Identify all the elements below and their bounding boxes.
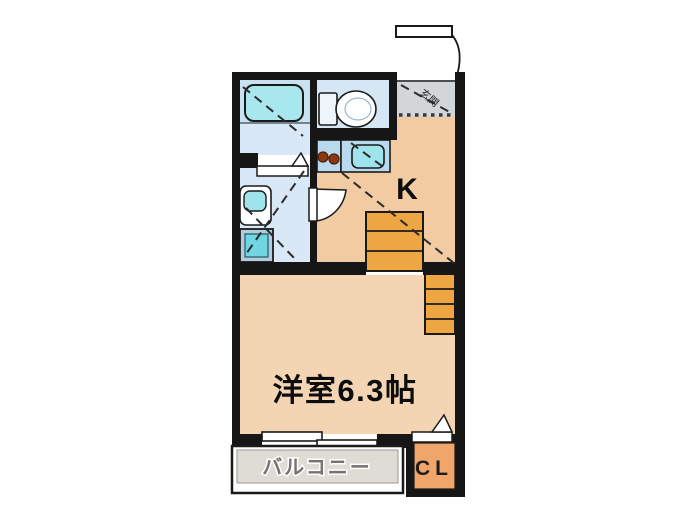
- wall-left: [232, 72, 240, 450]
- entrance-door-leaf: [396, 26, 452, 37]
- stove-burner-right: [329, 154, 339, 164]
- main-room-label: 洋室6.3帖: [272, 373, 417, 408]
- wall-closet-bottom: [406, 489, 465, 497]
- floor-plan-page: K 洋室6.3帖 バルコニー CL 玄関: [0, 0, 700, 525]
- wall-toilet-bottom: [310, 128, 397, 140]
- wall-right: [455, 72, 465, 497]
- main-room-floor: [240, 275, 455, 434]
- bathtub: [245, 85, 303, 121]
- window-sash-left: [262, 432, 322, 441]
- wall-toilet-entrance: [389, 72, 397, 134]
- wall-bath-kitchen-lower: [310, 220, 317, 262]
- toilet-bowl: [336, 91, 376, 127]
- toilet-tank: [319, 93, 337, 125]
- closet-label: CL: [415, 457, 453, 480]
- kitchen-label: K: [396, 173, 418, 206]
- wall-closet-left: [406, 443, 414, 497]
- wall-bathroom-bottom: [240, 153, 258, 168]
- balcony-label: バルコニー: [262, 456, 372, 479]
- stove-burner-left: [318, 152, 328, 162]
- wall-mid-right: [423, 262, 465, 275]
- wall-mid-left: [232, 262, 366, 275]
- floor-plan: K 洋室6.3帖 バルコニー CL 玄関: [0, 0, 700, 525]
- closet-door-bar: [412, 432, 452, 442]
- washroom-door-leaf: [309, 188, 317, 221]
- stairs-upper-flight: [366, 212, 423, 271]
